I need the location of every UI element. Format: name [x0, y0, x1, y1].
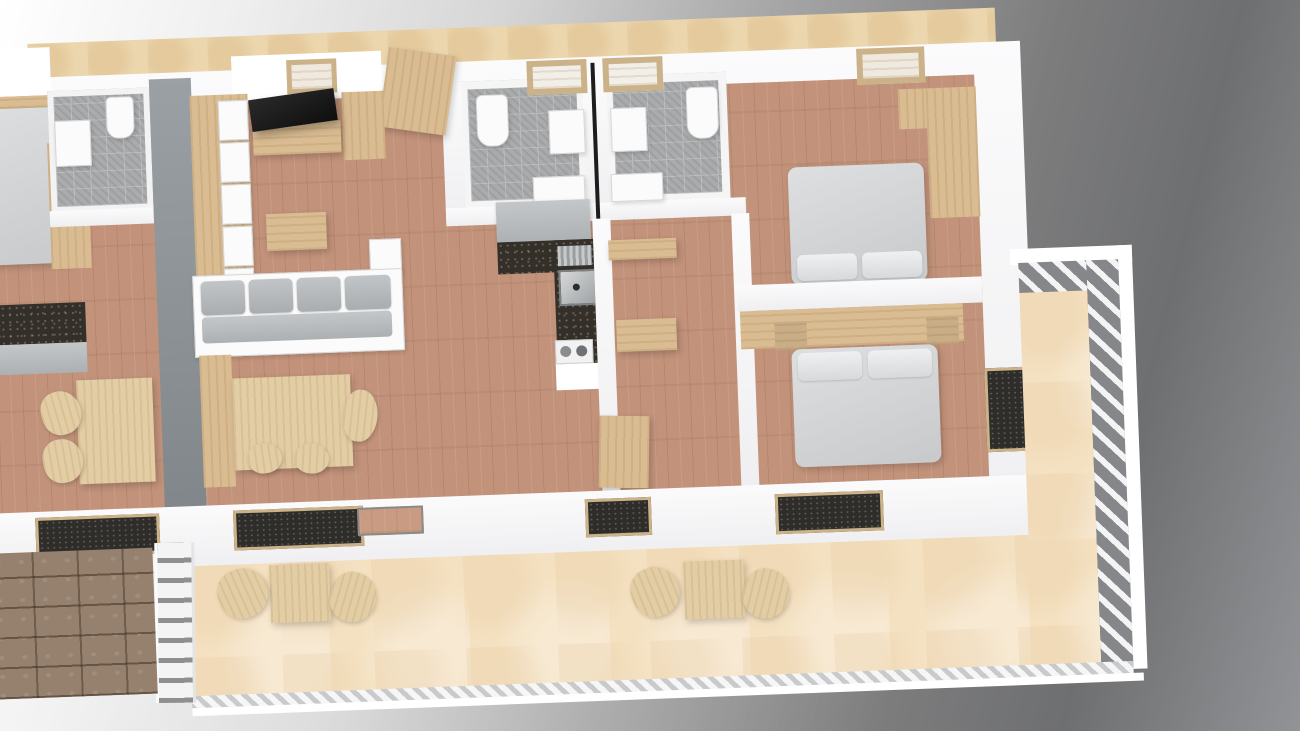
window-box-bath-left	[526, 59, 587, 95]
washbasin-right-bathroom	[610, 107, 648, 152]
nightstand	[774, 321, 807, 350]
shower-right-bathroom	[611, 172, 664, 202]
window-box-bath-right	[602, 56, 663, 92]
dining-bench	[199, 355, 236, 488]
cobblestone-path	[0, 548, 158, 700]
hall-door-open	[599, 416, 650, 489]
sofa-back-cushion	[248, 278, 293, 314]
top-left-wall-cap	[0, 47, 51, 102]
sofa-back-cushion	[200, 280, 245, 316]
hall-door-open	[608, 238, 677, 261]
entry-wardrobe	[341, 91, 386, 161]
neighbor-toilet	[105, 96, 135, 139]
pillow	[862, 251, 923, 279]
pillow	[797, 253, 858, 281]
toilet-left-bathroom	[476, 94, 510, 147]
bedroom-top-wardrobe-step	[898, 88, 929, 129]
pillow	[797, 351, 862, 381]
bedroom-top-wardrobe	[926, 86, 981, 218]
living-slider-open	[357, 505, 424, 535]
white-fence	[154, 543, 196, 703]
neighbor-dining-table	[76, 378, 156, 485]
coffee-table	[266, 212, 327, 251]
hall-south-window	[585, 497, 652, 537]
floorplan-render-scene	[0, 0, 1300, 731]
terrace-table	[683, 559, 745, 619]
sofa-back-cushion	[296, 276, 341, 312]
washbasin-left-bathroom	[548, 109, 586, 154]
hall-door-open	[616, 318, 677, 352]
kitchen-base-end	[556, 363, 601, 391]
terrace-table	[269, 563, 331, 623]
floorplan-plane	[0, 0, 1300, 731]
nightstand	[926, 315, 959, 344]
entry-door-open	[378, 47, 456, 136]
pillow	[867, 348, 932, 378]
sofa-back-cushion	[344, 275, 391, 311]
living-south-window	[233, 506, 364, 551]
kitchen-sink	[558, 269, 597, 306]
kitchen-drainer	[557, 245, 592, 266]
neighbor-kitchen-base	[0, 342, 88, 377]
toilet-right-bathroom	[685, 86, 719, 139]
bedroom-top-window-box	[856, 46, 925, 85]
kitchen-cooktop	[555, 339, 594, 364]
neighbor-vanity	[54, 120, 92, 167]
bedroom-south-window	[775, 490, 884, 534]
kitchen-cabinet-gray	[496, 199, 592, 244]
terrace-wing-floor	[1019, 288, 1096, 540]
terrace-rail-cap	[1018, 260, 1087, 293]
neighbor-kitchen-counter	[0, 302, 87, 347]
